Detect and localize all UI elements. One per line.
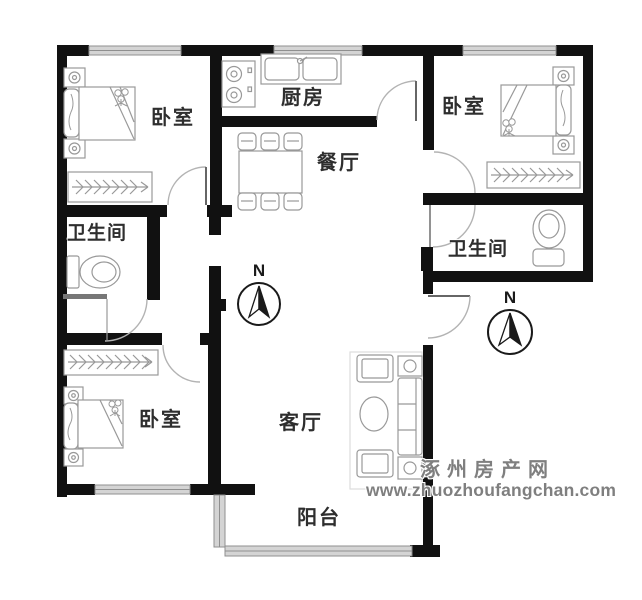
wall-segment	[57, 205, 167, 217]
wall-segment	[208, 345, 221, 484]
window-balcony-front	[225, 546, 412, 556]
wall-segment	[181, 45, 274, 56]
window-bedroom-top-right	[463, 46, 556, 55]
wall-segment	[147, 217, 160, 300]
wardrobe-icon-bedroom-bottom-left	[64, 350, 158, 375]
bed-icon-bedroom-top-right	[501, 67, 574, 154]
wall-segment	[57, 484, 95, 495]
floor-plan-page: 卧室 厨房 餐厅 卧室 卫生间 卫生间 卧室 客厅 阳台 N N 涿州房产网 w…	[0, 0, 642, 600]
room-label-dining-room: 餐厅	[317, 153, 361, 173]
wall-segment	[423, 193, 593, 205]
wall-segment	[222, 116, 377, 127]
room-label-living-room: 客厅	[279, 413, 323, 433]
toilet-icon-bathroom-left	[67, 256, 120, 288]
door-bedroom-top-left	[168, 167, 206, 205]
wardrobe-icon-bedroom-top-right	[487, 162, 580, 188]
compass-north-label-outer: N	[501, 289, 519, 306]
side-table-icon	[398, 356, 422, 376]
bed-icon-bedroom-bottom-left	[64, 387, 123, 466]
wall-segment	[583, 45, 593, 282]
wall-segment	[57, 45, 89, 56]
stove-icon	[222, 61, 255, 107]
wall-segment	[423, 45, 434, 150]
armchair-icon	[357, 355, 393, 382]
door-kitchen	[377, 81, 416, 121]
wall-segment	[190, 484, 255, 495]
room-label-bedroom-top-right: 卧室	[442, 97, 486, 117]
wall-segment	[57, 333, 162, 345]
room-label-bedroom-bottom-left: 卧室	[139, 410, 183, 430]
coffee-table-icon	[360, 397, 388, 431]
room-label-kitchen: 厨房	[281, 88, 325, 108]
wall-segment	[221, 299, 226, 311]
wall-segment	[423, 271, 593, 282]
room-label-bathroom-left: 卫生间	[67, 224, 127, 243]
wall-segment	[421, 247, 433, 271]
bed-icon-bedroom-top-left	[64, 68, 135, 158]
door-unit-entry	[428, 296, 470, 338]
window-balcony-side	[214, 495, 225, 547]
door-bedroom-top-right	[434, 152, 475, 193]
wall-segment	[410, 545, 440, 557]
window-bedroom-bottom-left	[95, 485, 190, 494]
dining-table-icon	[238, 133, 302, 210]
toilet-icon-bathroom-right	[533, 210, 565, 266]
watermark-site-url: www.zhuozhoufangchan.com	[366, 482, 616, 500]
watermark-site-name: 涿州房产网	[420, 460, 555, 480]
sink-icon	[261, 54, 341, 84]
compass-north-label-inner: N	[250, 262, 268, 279]
compass-icon-inner	[238, 283, 280, 325]
wall-segment	[362, 45, 463, 56]
wall-segment	[423, 345, 433, 550]
armchair-icon	[357, 450, 393, 477]
side-table-icon	[398, 457, 422, 479]
room-label-bathroom-right: 卫生间	[448, 240, 508, 259]
compass-icon-outer	[488, 310, 532, 354]
wall-segment	[200, 333, 221, 345]
room-label-balcony: 阳台	[297, 508, 341, 528]
wall-segment	[209, 266, 221, 333]
sofa-set-icon	[350, 352, 422, 489]
wardrobe-icon-bedroom-top-left	[68, 172, 152, 202]
wall-segment	[63, 294, 107, 299]
wall-segment	[210, 45, 222, 205]
window-bedroom-top-left	[89, 46, 181, 55]
sofa-icon	[398, 378, 422, 455]
room-label-bedroom-top-left: 卧室	[151, 108, 195, 128]
wall-segment	[209, 217, 221, 235]
door-bedroom-bottom-left	[163, 345, 200, 382]
wall-segment	[207, 205, 232, 217]
wall-segment	[423, 282, 433, 294]
